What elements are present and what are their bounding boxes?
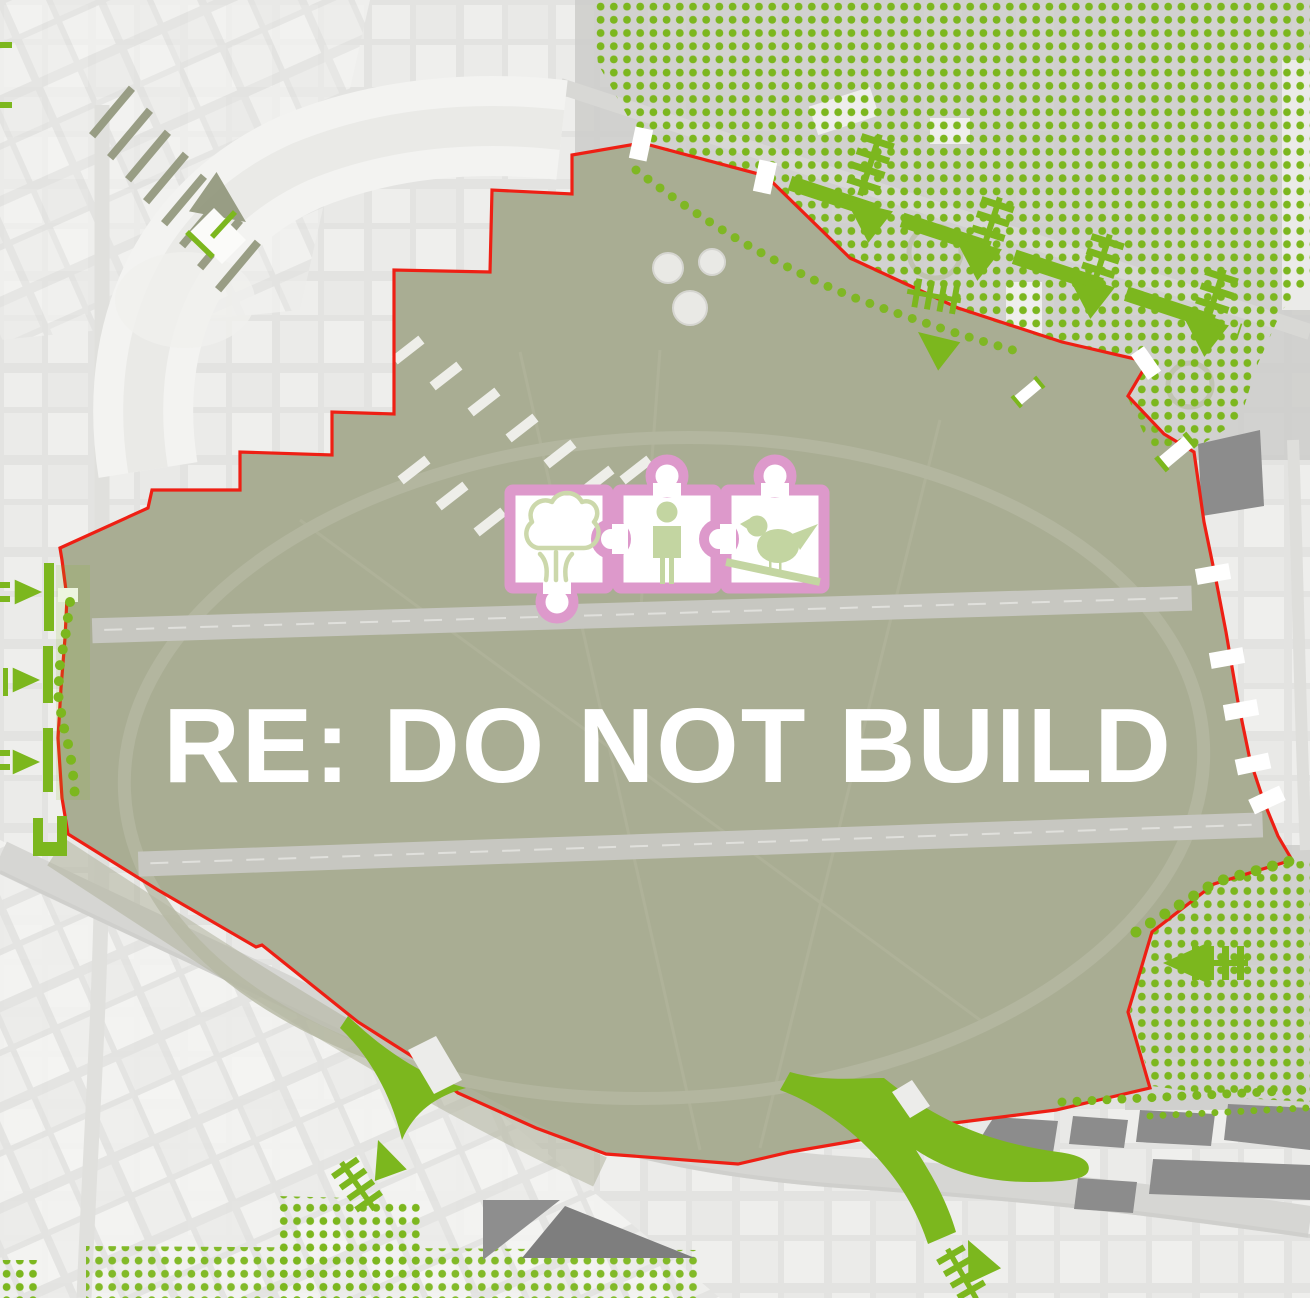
- building-block: [1149, 1159, 1310, 1200]
- dot-raster-corner: [0, 1260, 38, 1298]
- poster-title: RE: DO NOT BUILD: [163, 687, 1173, 805]
- building-block: [1074, 1178, 1137, 1213]
- building-block: [1198, 430, 1264, 516]
- site-plan-map: RE: DO NOT BUILD: [0, 0, 1310, 1298]
- site-plan-poster: RE: DO NOT BUILD: [0, 0, 1310, 1298]
- building-block: [1069, 1116, 1128, 1148]
